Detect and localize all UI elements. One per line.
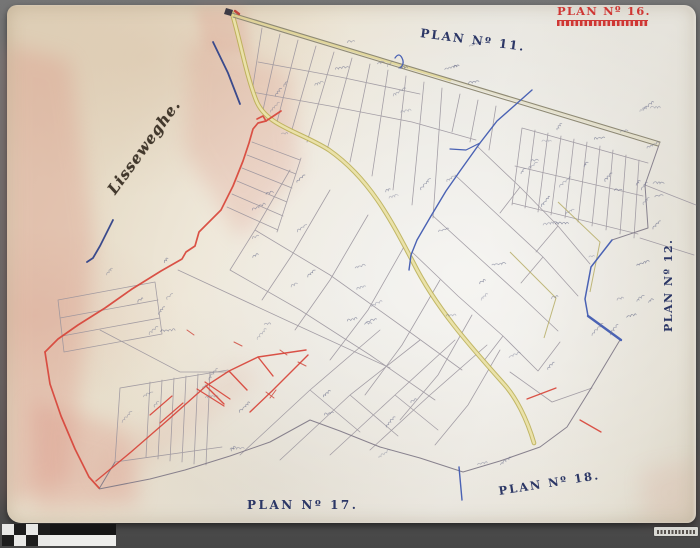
plan-16-underline xyxy=(557,20,648,26)
plan-17-label: PLAN Nº 17. xyxy=(247,498,358,512)
photo-scale-bar xyxy=(2,524,116,546)
inventory-tag xyxy=(654,527,698,536)
plan-16-label: PLAN Nº 16. xyxy=(557,4,651,18)
inventory-tag-text xyxy=(657,530,695,534)
scale-bar-row-bottom xyxy=(2,535,116,546)
parcel-lines xyxy=(58,28,696,465)
map-drawing xyxy=(0,0,700,548)
scale-bar-row-top xyxy=(2,524,116,535)
plan-12-label: PLAN Nº 12. xyxy=(662,239,675,332)
photograph-of-cadastral-map: PLAN Nº 16. PLAN Nº 11. PLAN Nº 12. PLAN… xyxy=(0,0,700,548)
